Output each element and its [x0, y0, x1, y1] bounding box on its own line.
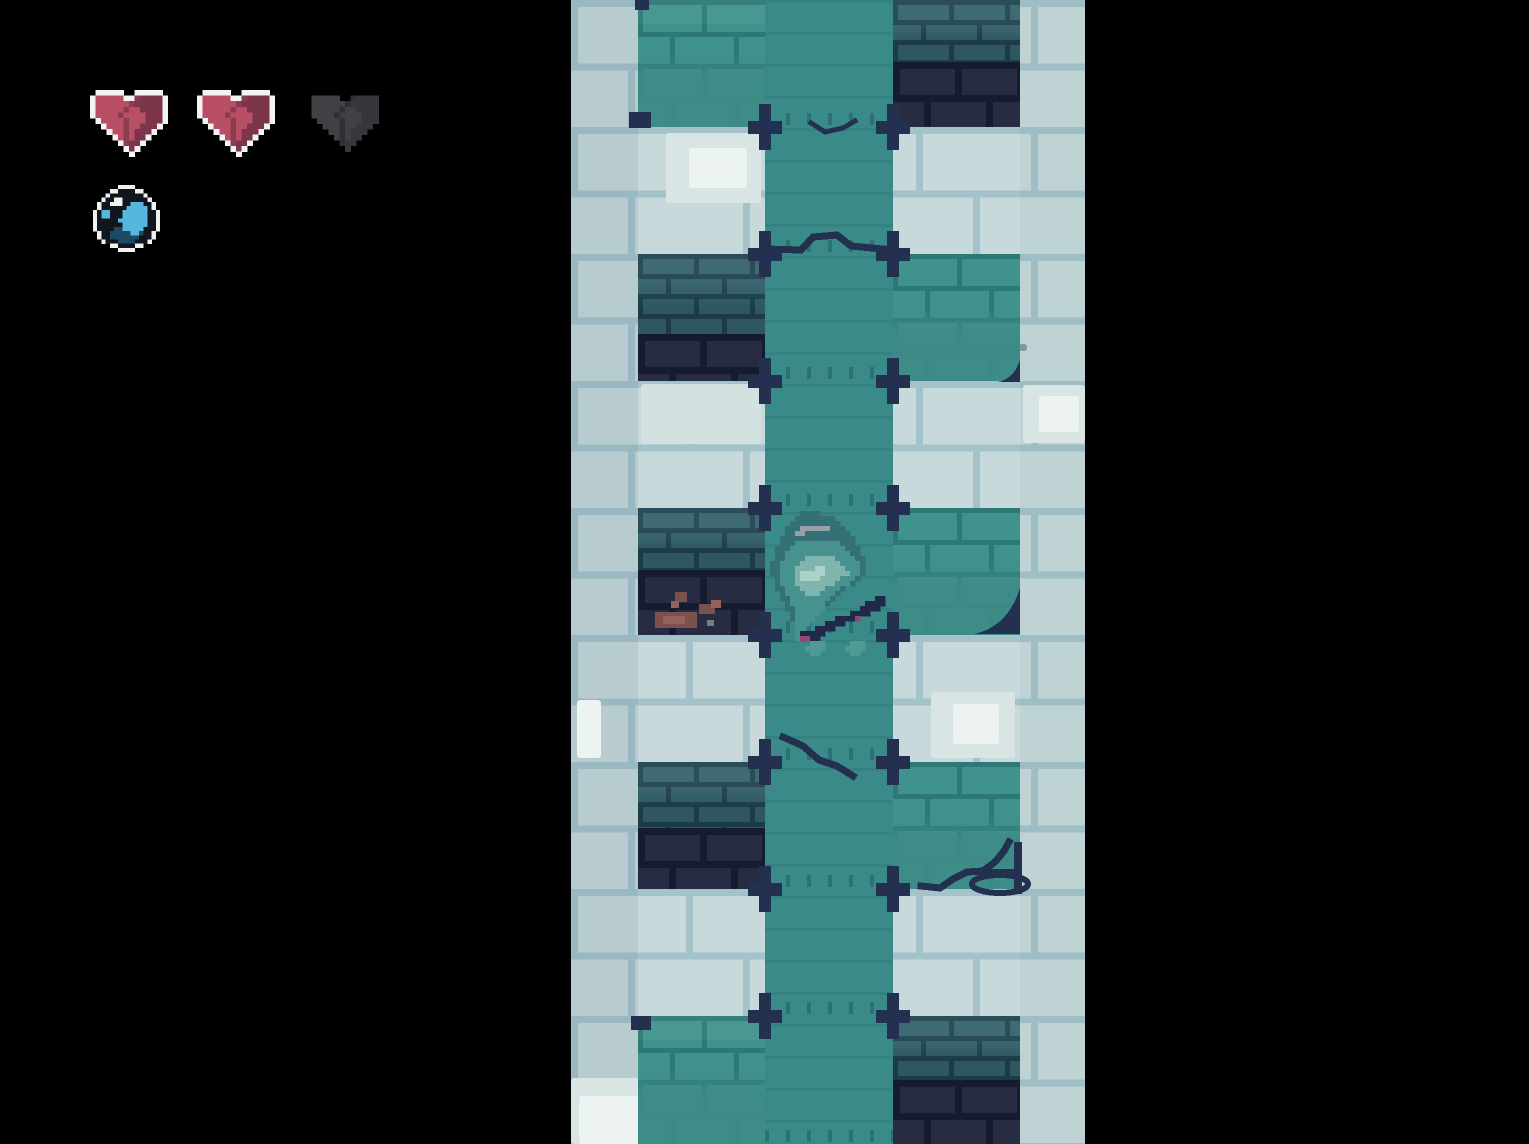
item-orb-icon	[93, 185, 160, 252]
orb-icon	[93, 185, 160, 252]
game-viewport[interactable]	[571, 0, 1085, 1144]
health-heart-full-2	[197, 90, 275, 157]
game-screen	[0, 0, 1529, 1144]
health-heart-full-1	[90, 90, 168, 157]
crack-decals	[571, 0, 1085, 1144]
health-heart-empty-3	[306, 90, 384, 157]
heart-icon	[90, 90, 168, 157]
heart-icon	[197, 90, 275, 157]
heart-icon	[306, 90, 384, 157]
